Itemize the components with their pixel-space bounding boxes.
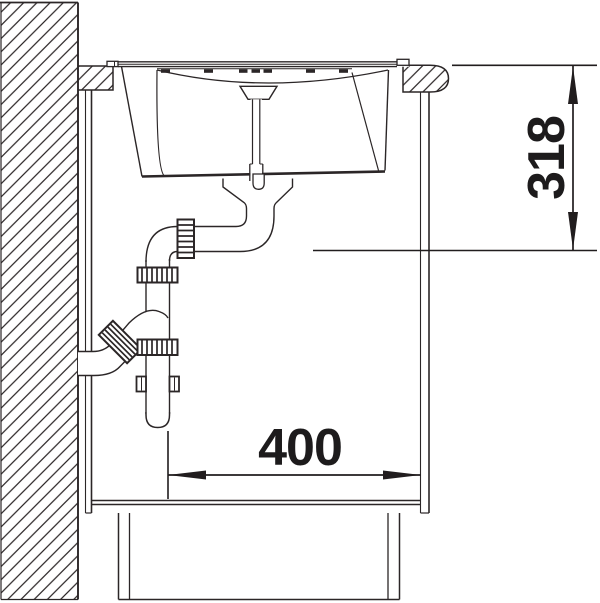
- coupling-nut-lower: [138, 340, 178, 356]
- rim-left-lip: [107, 61, 118, 66]
- dimension-value-vertical: 318: [518, 116, 576, 200]
- countertop-left-section: [78, 66, 113, 90]
- coupling-nut-upper: [138, 268, 178, 283]
- sink-rim: [107, 59, 409, 67]
- wall-hatched: [0, 3, 78, 600]
- countertop-bullnose-section: [403, 65, 449, 92]
- dimension-value-horizontal: 400: [258, 419, 342, 477]
- pipe-rounded-end: [146, 412, 170, 428]
- rim-right-lip: [397, 59, 409, 65]
- standpipe-bottom-cap: [253, 174, 264, 189]
- technical-drawing-canvas: 318 400: [0, 0, 600, 603]
- coupling-nut-horizontal: [178, 220, 195, 259]
